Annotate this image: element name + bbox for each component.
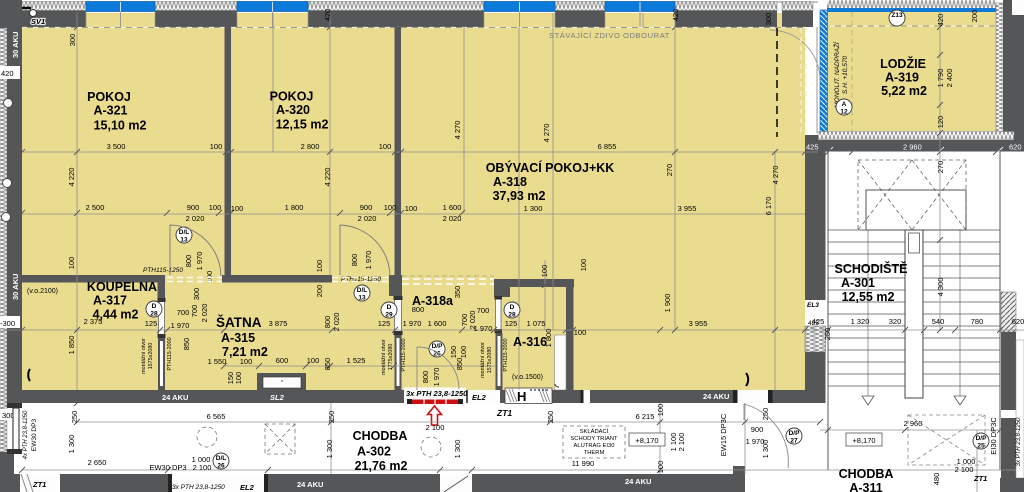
svg-text:1 075: 1 075 — [527, 319, 546, 328]
svg-text:700: 700 — [477, 306, 490, 315]
svg-text:250: 250 — [761, 408, 770, 421]
svg-text:800: 800 — [412, 305, 425, 314]
svg-text:1 300: 1 300 — [67, 435, 76, 454]
svg-text:4 220: 4 220 — [67, 168, 76, 187]
svg-text:1 600: 1 600 — [428, 319, 447, 328]
svg-text:+8,170: +8,170 — [852, 436, 875, 445]
svg-text:100: 100 — [67, 257, 76, 270]
svg-text:2 020: 2 020 — [200, 304, 209, 323]
svg-text:EW30 DP3: EW30 DP3 — [31, 419, 38, 452]
svg-text:montážní otvor: montážní otvor — [480, 342, 486, 378]
svg-text:(v.o.2100): (v.o.2100) — [27, 288, 58, 295]
svg-text:1 300: 1 300 — [325, 440, 334, 459]
svg-text:250: 250 — [823, 328, 832, 341]
svg-text:3 955: 3 955 — [689, 319, 708, 328]
svg-text:5,22 m2: 5,22 m2 — [881, 84, 927, 98]
svg-text:100: 100 — [209, 203, 222, 212]
svg-text:2 650: 2 650 — [88, 458, 107, 467]
svg-text:28: 28 — [508, 312, 516, 319]
svg-text:120: 120 — [936, 116, 945, 129]
svg-text:700: 700 — [190, 305, 199, 318]
svg-text:270: 270 — [936, 161, 945, 174]
svg-text:1 300: 1 300 — [453, 440, 462, 459]
svg-text:D/P: D/P — [432, 343, 444, 350]
svg-text:25: 25 — [977, 443, 985, 450]
svg-text:1 900: 1 900 — [663, 294, 672, 313]
svg-text:2 020: 2 020 — [332, 313, 341, 332]
svg-text:420: 420 — [323, 9, 332, 22]
svg-text:ŠATNA: ŠATNA — [216, 315, 262, 330]
svg-text:3 500: 3 500 — [107, 142, 126, 151]
svg-text:100: 100 — [656, 404, 665, 417]
svg-text:D/L: D/L — [216, 455, 227, 462]
svg-text:4 270: 4 270 — [542, 124, 551, 143]
svg-text:420: 420 — [671, 9, 680, 22]
svg-text:2 020: 2 020 — [186, 214, 205, 223]
svg-text:100: 100 — [234, 372, 243, 385]
svg-text:EW15 DP3C: EW15 DP3C — [719, 413, 728, 456]
svg-text:29: 29 — [385, 312, 393, 319]
svg-text:montážní otvor: montážní otvor — [381, 339, 387, 375]
svg-text:2 500: 2 500 — [86, 203, 105, 212]
svg-text:800: 800 — [323, 316, 332, 329]
svg-text:A-317: A-317 — [93, 294, 127, 308]
svg-text:6 565: 6 565 — [207, 412, 226, 421]
svg-text:270: 270 — [665, 164, 674, 177]
svg-text:EI30 DP3C: EI30 DP3C — [989, 417, 998, 455]
svg-text:D: D — [387, 304, 392, 311]
svg-text:480: 480 — [932, 473, 941, 486]
svg-text:24 AKU: 24 AKU — [625, 477, 651, 486]
svg-text:SKLÁDACÍ: SKLÁDACÍ — [580, 428, 609, 435]
svg-text:4 300: 4 300 — [936, 278, 945, 297]
svg-text:SCHODIŠTĚ: SCHODIŠTĚ — [835, 261, 908, 276]
svg-text:-300: -300 — [0, 319, 15, 328]
svg-text:D/L: D/L — [179, 229, 190, 236]
svg-text:2 960: 2 960 — [903, 143, 922, 152]
svg-text:620: 620 — [1012, 317, 1024, 326]
svg-text:S.H. +10,570: S.H. +10,570 — [842, 56, 849, 95]
svg-text:4 270: 4 270 — [453, 121, 462, 140]
svg-text:A-318: A-318 — [493, 175, 527, 189]
svg-text:320: 320 — [889, 317, 902, 326]
svg-text:2 100: 2 100 — [426, 423, 445, 432]
svg-text:800: 800 — [421, 371, 430, 384]
svg-text:1 600: 1 600 — [443, 203, 462, 212]
svg-text:MONOLIT. NADPRAŽÍ: MONOLIT. NADPRAŽÍ — [832, 41, 841, 108]
svg-text:540: 540 — [932, 317, 945, 326]
svg-text:15,10 m2: 15,10 m2 — [94, 119, 147, 133]
svg-text:28: 28 — [150, 311, 158, 318]
svg-text:850: 850 — [182, 338, 191, 351]
svg-text:3 875: 3 875 — [269, 319, 288, 328]
svg-text:SCHODY TRIANT: SCHODY TRIANT — [570, 436, 618, 442]
svg-text:13: 13 — [180, 237, 188, 244]
svg-text:100: 100 — [579, 259, 588, 272]
svg-text:D: D — [152, 303, 157, 310]
svg-text:200: 200 — [315, 285, 324, 298]
svg-text:780: 780 — [971, 317, 984, 326]
svg-text:1575x2080: 1575x2080 — [487, 347, 493, 374]
svg-text:24 AKU: 24 AKU — [703, 392, 729, 401]
svg-text:A-316: A-316 — [513, 335, 547, 349]
svg-text:2 375: 2 375 — [84, 317, 103, 326]
svg-text:30 AKU: 30 AKU — [11, 32, 20, 58]
svg-text:PTH115-1250: PTH115-1250 — [143, 267, 183, 274]
svg-text:425: 425 — [806, 143, 819, 152]
svg-text:800: 800 — [184, 255, 193, 268]
svg-text:2 100: 2 100 — [955, 465, 974, 474]
svg-text:A-319: A-319 — [885, 71, 919, 85]
svg-text:STÁVAJÍCÍ ZDIVO ODBOURAT: STÁVAJÍCÍ ZDIVO ODBOURAT — [549, 31, 670, 40]
svg-text:900: 900 — [187, 203, 200, 212]
svg-text:6 215: 6 215 — [636, 412, 655, 421]
svg-text:300: 300 — [68, 34, 77, 47]
svg-text:POKOJ: POKOJ — [270, 90, 314, 104]
svg-text:900: 900 — [751, 425, 764, 434]
svg-text:100: 100 — [405, 204, 418, 213]
svg-text:ZT1: ZT1 — [496, 408, 512, 418]
svg-text:3 955: 3 955 — [678, 204, 697, 213]
svg-text:37,93 m2: 37,93 m2 — [493, 189, 546, 203]
svg-text:12,15 m2: 12,15 m2 — [276, 118, 329, 132]
svg-text:CHODBA: CHODBA — [353, 429, 408, 443]
svg-text:900: 900 — [360, 203, 373, 212]
svg-text:SL2: SL2 — [270, 393, 285, 402]
svg-text:125: 125 — [145, 319, 158, 328]
svg-text:30 AKU: 30 AKU — [11, 274, 20, 300]
svg-text:POKOJ: POKOJ — [87, 90, 131, 104]
svg-text:1775x2080: 1775x2080 — [388, 344, 394, 371]
svg-text:2 100: 2 100 — [677, 433, 686, 452]
svg-text:Z13: Z13 — [891, 12, 903, 19]
svg-text:3x PTH 23,8-1250: 3x PTH 23,8-1250 — [1016, 417, 1022, 466]
svg-text:200: 200 — [970, 10, 979, 23]
svg-text:125: 125 — [505, 319, 518, 328]
svg-text:100: 100 — [379, 142, 392, 151]
svg-text:250: 250 — [546, 411, 555, 424]
svg-text:13: 13 — [358, 295, 366, 302]
svg-text:100: 100 — [574, 328, 587, 337]
svg-text:100: 100 — [240, 357, 253, 366]
svg-text:THERM: THERM — [584, 450, 605, 456]
svg-text:PTH115-2000: PTH115-2000 — [167, 337, 173, 370]
svg-text:ZT1: ZT1 — [973, 474, 987, 483]
svg-text:11 990: 11 990 — [572, 459, 594, 468]
svg-text:1 300: 1 300 — [524, 204, 543, 213]
svg-text:3x PTH 23,8-1250: 3x PTH 23,8-1250 — [406, 389, 468, 398]
svg-text:21,76 m2: 21,76 m2 — [355, 459, 408, 473]
svg-text:150: 150 — [449, 346, 458, 359]
svg-text:26: 26 — [217, 463, 225, 470]
svg-text:250: 250 — [327, 411, 336, 424]
svg-text:700: 700 — [177, 308, 190, 317]
svg-text:1575x2080: 1575x2080 — [148, 343, 154, 370]
svg-text:(v.o.1500): (v.o.1500) — [512, 374, 543, 381]
svg-text:3x PTH 23,8-1250: 3x PTH 23,8-1250 — [172, 484, 225, 491]
svg-text:A-301: A-301 — [841, 276, 875, 290]
svg-text:1 320: 1 320 — [851, 317, 870, 326]
svg-text:4 220: 4 220 — [323, 168, 332, 187]
svg-text:D: D — [510, 304, 515, 311]
svg-text:620: 620 — [1009, 143, 1022, 152]
svg-text:A-315: A-315 — [221, 331, 255, 345]
svg-text:12,55 m2: 12,55 m2 — [842, 290, 895, 304]
svg-text:montážní otvor: montážní otvor — [141, 338, 147, 374]
svg-text:100: 100 — [656, 461, 665, 474]
svg-text:A-311: A-311 — [849, 481, 882, 492]
svg-text:1 970: 1 970 — [364, 251, 373, 270]
svg-text:PTH115-2000: PTH115-2000 — [401, 338, 407, 371]
svg-text:100: 100 — [540, 265, 549, 278]
svg-text:850: 850 — [323, 358, 332, 371]
svg-text:H: H — [517, 389, 526, 404]
svg-text:300: 300 — [192, 288, 201, 301]
svg-text:300: 300 — [764, 13, 773, 26]
svg-text:2 020: 2 020 — [443, 214, 462, 223]
svg-text:4 270: 4 270 — [771, 166, 780, 185]
svg-text:24 AKU: 24 AKU — [162, 393, 188, 402]
svg-text:D/L: D/L — [357, 287, 368, 294]
svg-text:12: 12 — [840, 109, 848, 116]
svg-text:800: 800 — [350, 254, 359, 267]
svg-text:EW30 DP3: EW30 DP3 — [149, 463, 186, 472]
svg-text:850: 850 — [455, 358, 464, 371]
svg-text:4x PTH 23,8-1250: 4x PTH 23,8-1250 — [23, 410, 29, 459]
svg-text:A-321: A-321 — [93, 104, 127, 118]
svg-text:1 970: 1 970 — [171, 321, 190, 330]
svg-text:100: 100 — [315, 260, 324, 273]
svg-text:1 790: 1 790 — [936, 69, 945, 88]
svg-text:2 100: 2 100 — [193, 463, 212, 472]
svg-text:6 855: 6 855 — [598, 142, 617, 151]
svg-text:250: 250 — [70, 411, 79, 424]
svg-text:PTH115-2000: PTH115-2000 — [503, 338, 509, 371]
svg-text:100: 100 — [459, 346, 468, 359]
svg-text:125: 125 — [378, 319, 391, 328]
svg-text:420: 420 — [936, 14, 945, 27]
svg-text:350: 350 — [453, 286, 462, 299]
svg-text:2 020: 2 020 — [468, 311, 477, 330]
svg-text:1 970: 1 970 — [195, 252, 204, 271]
svg-text:1 550: 1 550 — [208, 357, 227, 366]
svg-text:100: 100 — [231, 204, 244, 213]
svg-text:6 170: 6 170 — [764, 197, 773, 216]
svg-text:1 525: 1 525 — [347, 356, 366, 365]
svg-text:1 800: 1 800 — [285, 203, 304, 212]
svg-text:ZT1: ZT1 — [32, 480, 46, 489]
svg-text:ALUTRAG EI30: ALUTRAG EI30 — [574, 443, 615, 449]
svg-text:+8,170: +8,170 — [635, 436, 658, 445]
svg-text:EL3: EL3 — [807, 302, 819, 309]
svg-text:2 400: 2 400 — [945, 69, 954, 88]
svg-text:1 850: 1 850 — [67, 336, 76, 355]
svg-text:100: 100 — [384, 203, 397, 212]
svg-text:1 800: 1 800 — [544, 329, 553, 348]
svg-text:A-320: A-320 — [276, 103, 310, 117]
svg-text:KOUPELNA: KOUPELNA — [87, 280, 157, 294]
svg-text:CHODBA: CHODBA — [839, 467, 894, 481]
svg-text:2 020: 2 020 — [358, 214, 377, 223]
svg-text:A-302: A-302 — [357, 445, 391, 459]
svg-text:600: 600 — [276, 356, 289, 365]
svg-text:2 800: 2 800 — [301, 142, 320, 151]
svg-text:100: 100 — [307, 356, 320, 365]
svg-text:420: 420 — [1, 69, 14, 78]
svg-text:A: A — [842, 101, 847, 108]
svg-text:OBÝVACÍ POKOJ+KK: OBÝVACÍ POKOJ+KK — [486, 160, 615, 175]
svg-text:2 960: 2 960 — [904, 419, 923, 428]
svg-text:27: 27 — [790, 438, 798, 445]
svg-text:LODŽIE: LODŽIE — [880, 56, 926, 71]
svg-text:EL2: EL2 — [240, 483, 255, 492]
svg-text:425: 425 — [812, 317, 825, 326]
svg-text:24 AKU: 24 AKU — [297, 480, 323, 489]
svg-text:100: 100 — [210, 142, 223, 151]
svg-text:1 970: 1 970 — [432, 368, 441, 387]
svg-text:1 300: 1 300 — [761, 440, 770, 459]
svg-text:1 970: 1 970 — [403, 319, 422, 328]
svg-text:D/P: D/P — [789, 430, 801, 437]
svg-text:SV1: SV1 — [31, 17, 45, 26]
svg-text:EL2: EL2 — [472, 393, 487, 402]
